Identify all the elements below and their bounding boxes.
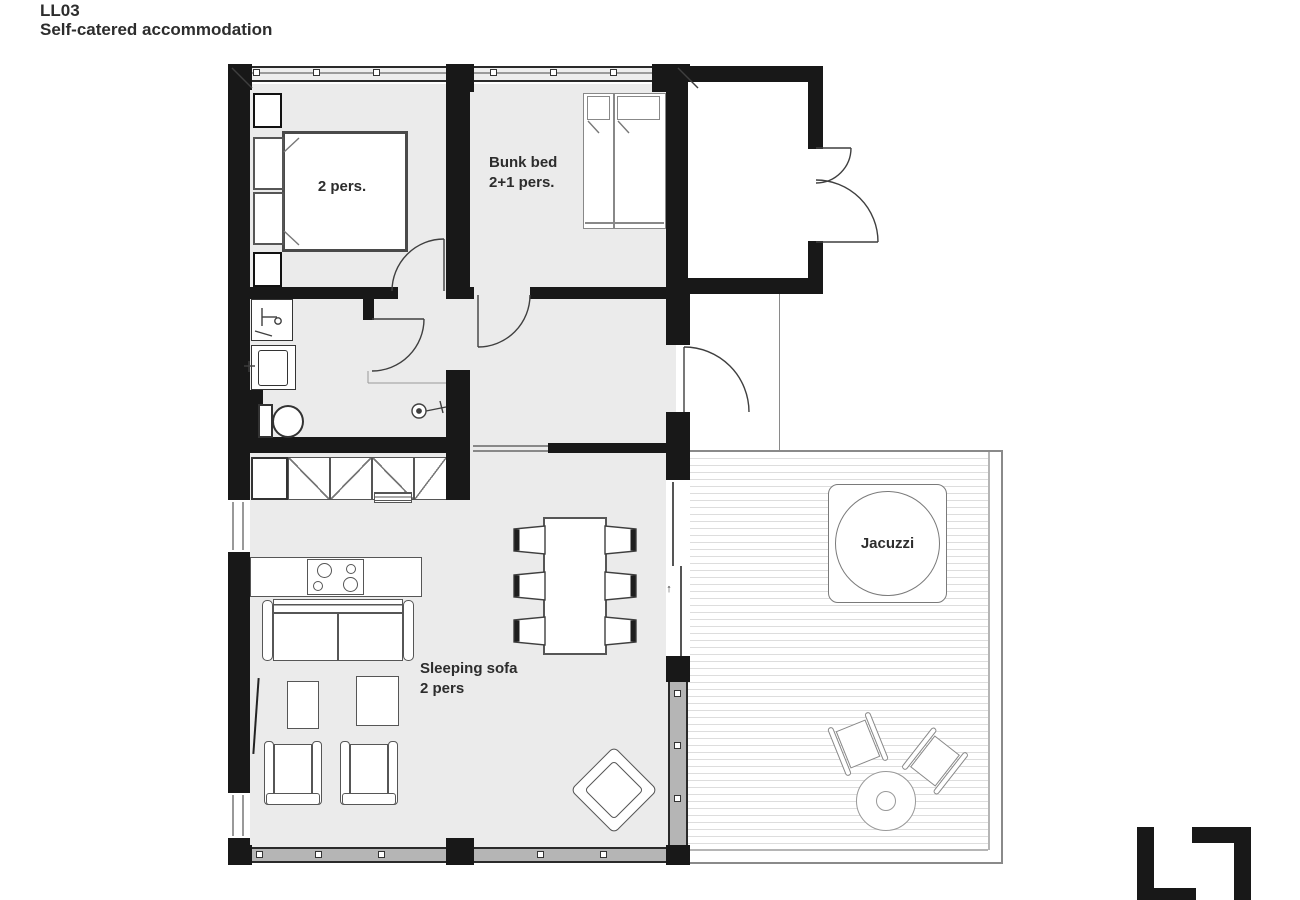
sliding-door-east [666,480,690,656]
plan-title: LL03 [40,2,80,20]
porch-wall-south [676,278,823,294]
kitchen-cabinet [414,457,447,500]
window-post [610,69,617,76]
toilet-tank [258,404,273,438]
wall-east-3 [666,656,690,682]
armchair [340,741,398,805]
wall-hall-south [548,443,676,453]
wall-bedroom-south-2 [446,287,474,299]
living-room-label-line1: Sleeping sofa [420,661,518,677]
porch-wall-east-2 [808,241,823,294]
armchair [264,741,322,805]
toilet-bowl [272,405,304,438]
window-band-east [668,682,688,845]
floor-plan-page: LL03 Self-catered accommodation Jacuzzi [0,0,1300,900]
threshold-line [473,450,548,452]
bedroom-label: 2 pers. [298,179,386,195]
window-post [674,690,681,697]
wall-east-1 [666,64,690,345]
sliding-door-panel [680,566,682,656]
bunk-pillow [617,96,660,120]
window-post [537,851,544,858]
bunk-pillow [587,96,610,120]
kitchen-cabinet [330,457,372,500]
nightstand [253,252,282,287]
sofa-seat [273,613,338,661]
wall-bath-south [228,437,470,453]
window-post [253,69,260,76]
sofa-seat [338,613,403,661]
bunk-room-label-line2: 2+1 pers. [489,175,554,191]
table-center [876,791,896,811]
living-room-label-line2: 2 pers [420,681,464,697]
washbasin-cabinet [251,299,293,341]
logo-bracket-right [1234,827,1251,900]
window-post [550,69,557,76]
porch-wall-north [676,66,823,82]
threshold-line [473,445,548,447]
fridge [251,457,288,500]
bunk-bed-divider [613,93,615,229]
window-post [490,69,497,76]
burner [317,563,332,578]
slide-direction-arrow-icon: ↑ [662,583,676,595]
wall-bath-partition [363,287,374,320]
side-landing [690,294,780,450]
window-post [378,851,385,858]
wall-bunk-south [530,287,676,299]
window-post [256,851,263,858]
side-table [356,676,399,726]
plan-subtitle: Self-catered accommodation [40,21,272,39]
wall-bedrooms-divider [446,64,470,292]
side-table [287,681,319,729]
corner-southwest [228,845,252,865]
jacuzzi-label: Jacuzzi [828,536,947,552]
dishwasher-vent [374,492,412,503]
window-frame [232,502,234,550]
window-frame [232,795,234,836]
burner [346,564,356,574]
sofa-armrest [262,600,273,661]
bathroom-sink-basin [258,350,288,386]
post-south-center [446,838,474,865]
burner [313,581,323,591]
armchair-seat [274,744,312,794]
terrace-inner-edge-right [988,452,990,850]
armchair-back [342,793,396,805]
nightstand [253,93,282,128]
window-frame [242,502,244,550]
bunk-room-label-line1: Bunk bed [489,155,557,171]
kitchen-cabinet [288,457,330,500]
bed-pillow [253,192,284,245]
window-post [373,69,380,76]
armchair-seat [350,744,388,794]
door-swing-porch-double-icon [816,148,878,242]
window-post [313,69,320,76]
window-post [315,851,322,858]
bunk-bed-footline [585,222,664,224]
wall-west [228,64,250,865]
armchair-back [266,793,320,805]
window-frame [242,795,244,836]
corner-northwest [228,64,252,90]
bed-pillow [253,137,284,190]
porch-wall-east-1 [808,66,823,149]
porch-floor [688,82,810,280]
sofa-back [273,599,403,613]
kitchen-tall-unit [446,437,470,500]
sofa-armrest [403,600,414,661]
terrace-round-table [856,771,916,831]
terrace-top-edge [685,450,1003,452]
logo-bracket-left [1137,888,1196,900]
window-post [674,742,681,749]
burner [343,577,358,592]
dining-table [543,517,607,655]
corner-southeast [666,845,690,865]
window-post [600,851,607,858]
terrace-inner-edge-bottom [685,849,988,851]
sliding-door-panel [672,482,674,566]
window-post [674,795,681,802]
brand-logo [1137,827,1251,900]
